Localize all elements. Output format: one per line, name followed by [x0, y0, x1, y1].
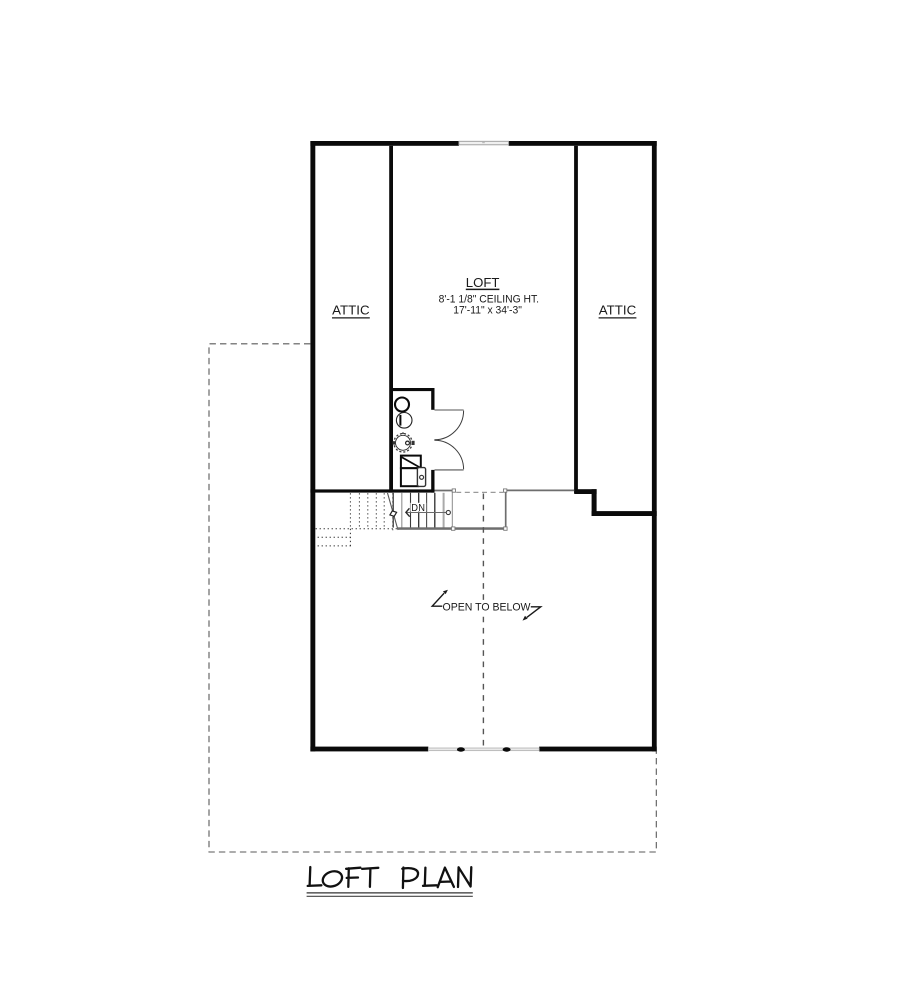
- svg-text:OPEN TO BELOW: OPEN TO BELOW: [443, 601, 531, 613]
- svg-text:DN: DN: [411, 503, 425, 514]
- svg-text:17'-11" x 34'-3": 17'-11" x 34'-3": [453, 304, 522, 316]
- svg-text:ATTIC: ATTIC: [332, 303, 370, 318]
- svg-text:ATTIC: ATTIC: [599, 303, 637, 318]
- svg-text:LOFT: LOFT: [466, 276, 500, 290]
